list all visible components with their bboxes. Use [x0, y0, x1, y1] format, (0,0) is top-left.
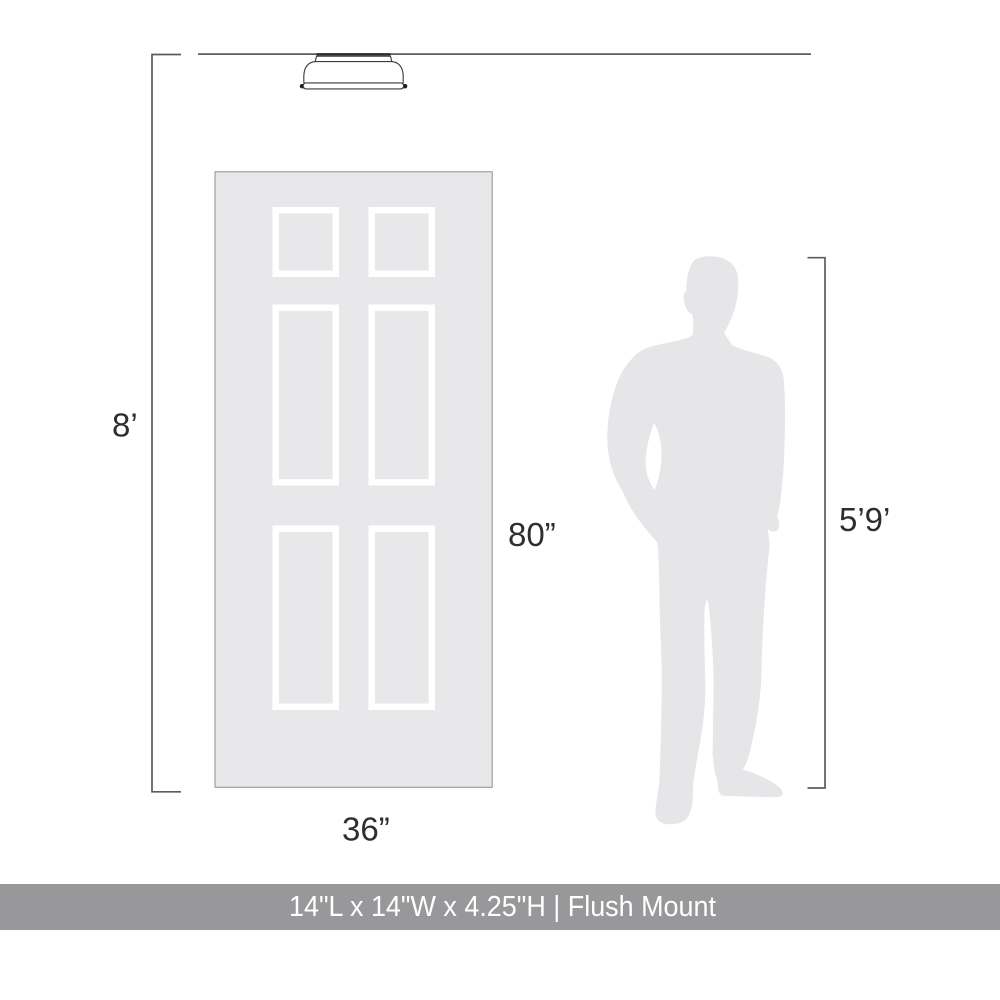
svg-text:14"L x 14"W x 4.25"H | Flush M: 14"L x 14"W x 4.25"H | Flush Mount — [289, 891, 716, 923]
svg-text:8’: 8’ — [112, 407, 138, 444]
svg-text:80”: 80” — [508, 516, 556, 553]
svg-text:5’9’: 5’9’ — [839, 501, 890, 538]
svg-text:36”: 36” — [342, 811, 390, 848]
